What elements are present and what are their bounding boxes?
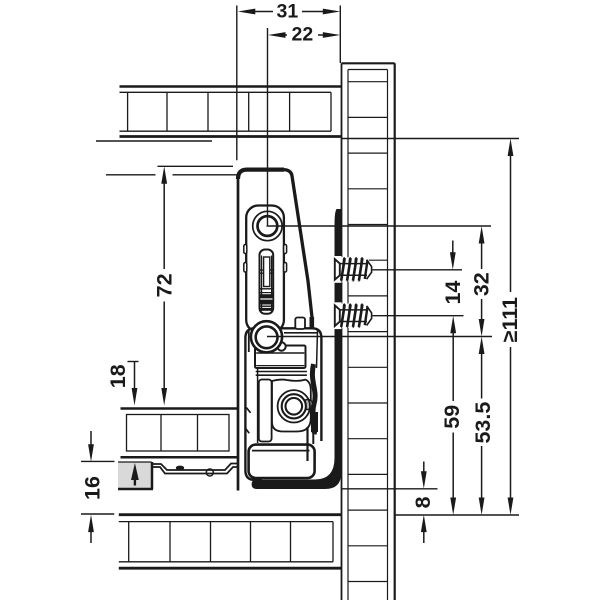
svg-text:18: 18 [106,364,130,388]
svg-text:14: 14 [441,281,465,305]
svg-text:16: 16 [80,476,104,500]
svg-text:22: 22 [292,23,314,45]
svg-text:72: 72 [153,273,177,297]
svg-text:8: 8 [411,496,435,508]
svg-text:≥111: ≥111 [498,297,522,342]
svg-text:53.5: 53.5 [471,402,495,444]
svg-text:59: 59 [440,405,464,429]
svg-text:32: 32 [470,272,494,296]
svg-text:31: 31 [277,1,299,23]
